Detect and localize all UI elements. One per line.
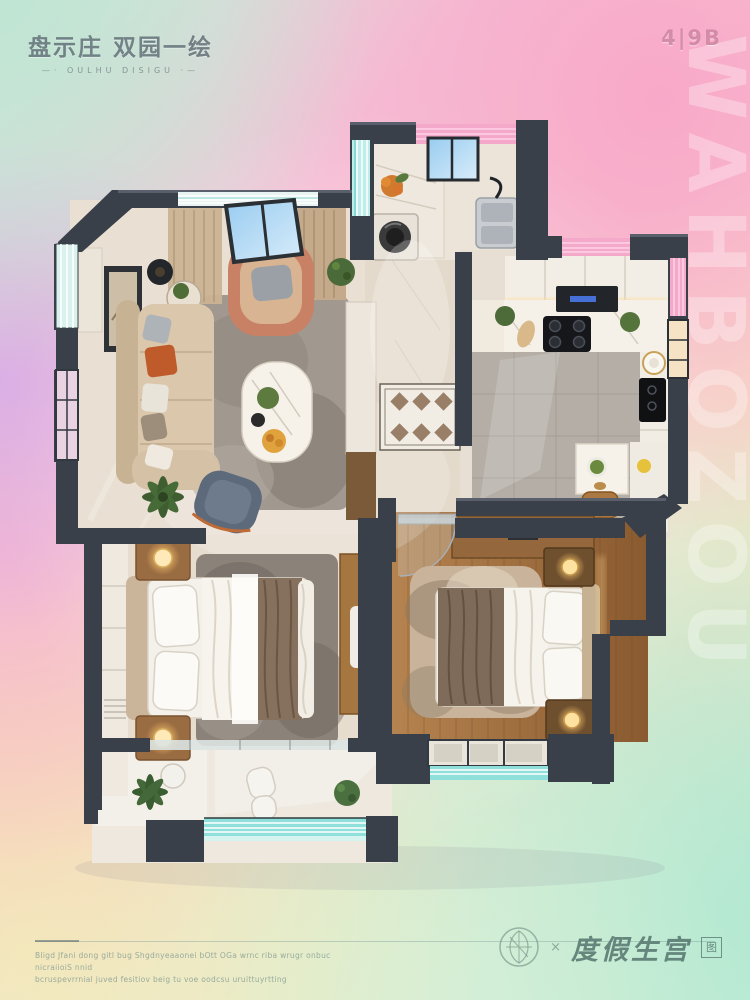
nightstand-top (544, 548, 594, 586)
brand-seal: 图 (701, 937, 722, 958)
brand-logo: × 度假生宫 图 (498, 926, 722, 968)
headboard (126, 576, 150, 720)
balcony-teal-railing (204, 818, 366, 841)
potted-plant (327, 258, 355, 286)
duvet (504, 588, 548, 706)
ruffle (298, 580, 314, 718)
dining-table (576, 444, 628, 494)
bay-window-lower (56, 370, 78, 460)
blanket (438, 588, 504, 706)
kitchen-pink-window-top (562, 238, 630, 256)
potted-palm (142, 476, 184, 518)
black-dish (251, 413, 265, 427)
laundry-inner-window (428, 138, 478, 180)
logo-separator: × (550, 940, 561, 955)
header: 盘示庄 双园一绘 —· OULHU DISIGU ·— (28, 28, 213, 75)
pillow (543, 647, 586, 701)
l-shaped-sofa (116, 300, 220, 490)
page-subtitle: —· OULHU DISIGU ·— (28, 66, 213, 75)
draped-sheet (232, 574, 258, 724)
pillow-taupe (140, 412, 168, 442)
brand-calligraphy: 度假生宫 (571, 928, 691, 967)
pillow (152, 585, 200, 648)
balcony-plant-right (334, 780, 360, 806)
table-lamp (564, 712, 580, 728)
counter-plant-left (495, 306, 515, 326)
circular-leaf-emblem-icon (498, 926, 540, 968)
kitchen-right-window (668, 320, 688, 378)
pillow (542, 591, 586, 646)
page-title: 盘示庄 双园一绘 (28, 28, 213, 62)
coffee-table (242, 362, 312, 462)
balcony-door-glass (150, 740, 348, 750)
induction-panel (639, 378, 666, 422)
pillow-orange (144, 344, 178, 378)
disclaimer-line-1: Bligd Jfani dong gitl bug Shgdnyeaaonei … (35, 950, 365, 974)
diamond-mosaic-floor (380, 384, 460, 450)
small-dish (594, 482, 606, 490)
console-cabinet (346, 452, 376, 520)
kitchen-pink-window-right (670, 258, 686, 316)
bedroom2-window (428, 740, 548, 766)
window-sill (78, 248, 102, 332)
hood-display (570, 296, 596, 302)
round-table (161, 764, 185, 788)
disclaimer: Bligd Jfani dong gitl bug Shgdnyeaaonei … (35, 950, 365, 986)
floor-plan-render (0, 0, 750, 1000)
table-lamp (562, 559, 578, 575)
sky-window (226, 200, 302, 262)
counter-plant-right (620, 312, 640, 332)
double-bed (436, 584, 600, 710)
gas-cooktop (543, 316, 591, 352)
table-plant (257, 387, 279, 409)
pillow-gray (142, 314, 173, 345)
balcony-plant-left (132, 774, 168, 810)
disclaimer-line-2: bcruspevrrnial juved fesitiov beig tu vo… (35, 974, 365, 986)
bedroom2-teal-glass (430, 766, 548, 780)
poster: WAHBOZOU 盘示庄 双园一绘 —· OULHU DISIGU ·— 4|9… (0, 0, 750, 1000)
side-table-plant (173, 283, 189, 299)
bay-window-upper (56, 244, 78, 328)
salad (590, 460, 604, 474)
yellow-bowl (636, 458, 652, 474)
table-lamp (154, 549, 172, 567)
laundry-cyan-window (352, 140, 370, 216)
pillow-white (141, 383, 169, 413)
unit-code: 4|9B (661, 26, 722, 50)
double-bed (126, 574, 314, 724)
pillow (153, 651, 200, 711)
